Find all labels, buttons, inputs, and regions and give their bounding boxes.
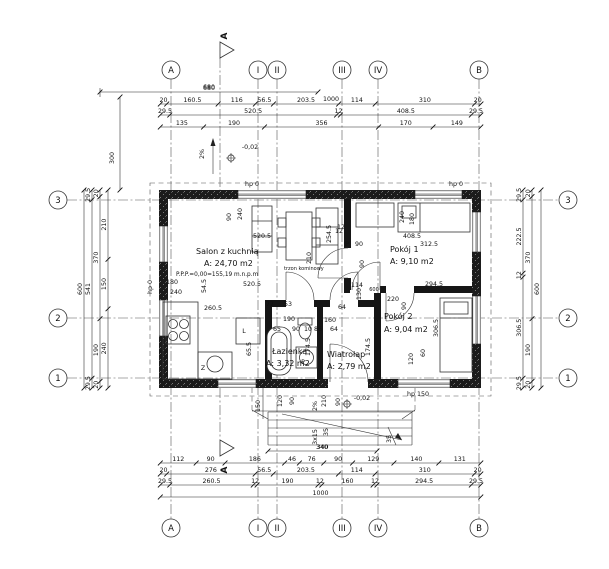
dim-label: 114 bbox=[351, 282, 363, 289]
room-area-wiatrolap: A: 2,79 m2 bbox=[327, 362, 371, 371]
kitchen-counter bbox=[163, 302, 198, 379]
dim-label: P bbox=[345, 241, 349, 248]
dim-label: 131 bbox=[454, 456, 466, 463]
dim-label: 408.5 bbox=[403, 233, 421, 240]
dim-label: 408.5 bbox=[397, 108, 415, 115]
dim-label: 1000 bbox=[323, 96, 339, 103]
dim-label: 541 bbox=[85, 283, 92, 295]
axis-label: B bbox=[476, 66, 482, 76]
dim-label: 160 bbox=[341, 478, 353, 485]
dim-label: 90 bbox=[335, 398, 342, 406]
window bbox=[398, 379, 450, 388]
dim-label: 170 bbox=[400, 120, 412, 127]
dim-label: 186 bbox=[249, 456, 261, 463]
axis-label: B bbox=[476, 524, 482, 534]
dim-label: 56.5 bbox=[257, 467, 271, 474]
section-marker-icon bbox=[220, 42, 234, 58]
axis-label: A bbox=[168, 524, 174, 534]
room-name-pokoj2: Pokój 2 bbox=[384, 311, 413, 321]
dim-label: 120 bbox=[277, 395, 284, 407]
dim-label: 12 bbox=[335, 228, 343, 235]
dim-label: 130 bbox=[356, 288, 363, 300]
dim-label: 135 bbox=[176, 120, 188, 127]
room-area-pokoj2: A: 9,04 m2 bbox=[384, 325, 428, 334]
room-area-salon: A: 24,70 m2 bbox=[204, 259, 253, 268]
axis-label: 1 bbox=[565, 374, 570, 384]
axis-label: III bbox=[338, 66, 346, 76]
dim-label: 20 bbox=[474, 467, 482, 474]
dim-label: 20 bbox=[525, 189, 532, 197]
room-name-lazienka: Łazienka bbox=[271, 347, 307, 356]
dim-label: 160 bbox=[324, 317, 336, 324]
axis-label: A bbox=[168, 66, 174, 76]
dim-label: 276 bbox=[205, 467, 217, 474]
dim-label: L bbox=[242, 328, 246, 335]
dim-label: 1000 bbox=[313, 490, 329, 497]
dim-label: 306.5 bbox=[433, 319, 440, 337]
axis-bubbles: AIIIIIIIVBAIIIIIIIVB321321 bbox=[49, 61, 577, 537]
window bbox=[472, 212, 481, 252]
dim-label: 120 bbox=[408, 353, 415, 365]
dim-label: hp 0 bbox=[245, 181, 259, 188]
dim-label: 140 bbox=[410, 456, 422, 463]
axis-label: II bbox=[274, 524, 279, 534]
dim-label: 190 bbox=[93, 344, 100, 356]
section-label-bottom: A bbox=[220, 466, 230, 473]
dim-label: 310 bbox=[419, 97, 431, 104]
dim-label: 54.5 bbox=[201, 279, 208, 293]
dim-label: 600 bbox=[369, 287, 379, 293]
dim-label: 190 bbox=[525, 344, 532, 356]
axis-label: 2 bbox=[565, 314, 570, 324]
dim-label: 190 bbox=[282, 478, 294, 485]
dim-label: 29.5 bbox=[469, 478, 483, 485]
dim-label: 240 bbox=[399, 211, 406, 223]
dim-label: 2% bbox=[199, 149, 206, 159]
dim-label: 64 bbox=[338, 304, 346, 311]
dim-label: 174.5 bbox=[365, 338, 372, 356]
dim-label: 180 bbox=[409, 213, 416, 225]
dim-label: 76 bbox=[308, 456, 316, 463]
dim-label: 20 bbox=[159, 97, 167, 104]
floor-level-note: P.P.P.=0,00=155,19 m.n.p.m bbox=[176, 272, 259, 278]
dim-label: 77 bbox=[266, 301, 274, 308]
dim-label: 294.5 bbox=[415, 478, 433, 485]
dim-label: 3x15 bbox=[312, 429, 319, 445]
dim-label: 64 bbox=[330, 326, 338, 333]
dim-label: 90 bbox=[334, 456, 342, 463]
dim-label: 254.5 bbox=[326, 225, 333, 243]
dim-label: 29.5 bbox=[158, 108, 172, 115]
dim-label: 29.5 bbox=[158, 478, 172, 485]
dim-label: 20 bbox=[159, 467, 167, 474]
dim-label: 310 bbox=[419, 467, 431, 474]
dim-label: 90 bbox=[401, 302, 408, 310]
dim-label: 10 bbox=[304, 326, 312, 333]
dim-label: 240 bbox=[170, 289, 182, 296]
dim-label: 114 bbox=[351, 467, 363, 474]
dim-label: 260.5 bbox=[202, 478, 220, 485]
axis-label: IV bbox=[374, 66, 383, 76]
dim-label: trzon kominowy bbox=[284, 266, 324, 272]
dim-label: 190 bbox=[283, 316, 295, 323]
dim-label: 90 bbox=[207, 456, 215, 463]
dim-label: 20 bbox=[93, 189, 100, 197]
dim-label: 29.5 bbox=[469, 108, 483, 115]
dim-label: 29.5 bbox=[85, 376, 92, 390]
room-name-salon: Salon z kuchnią bbox=[196, 247, 259, 256]
dim-label: 680 bbox=[203, 84, 215, 91]
dim-label: 190 bbox=[228, 120, 240, 127]
window bbox=[415, 190, 462, 199]
window bbox=[159, 300, 168, 336]
dim-label: 370 bbox=[93, 252, 100, 264]
dim-label: 90 bbox=[289, 397, 296, 405]
cabinet bbox=[252, 206, 272, 252]
dim-label: 180 bbox=[166, 279, 178, 286]
dim-label: 35 bbox=[323, 428, 330, 436]
section-marker-icon bbox=[220, 440, 234, 456]
floor-plan-canvas: A A 68020160.511656.5203.51143102029.552… bbox=[0, 0, 609, 569]
axis-label: 1 bbox=[55, 374, 60, 384]
dim-label: 20 bbox=[93, 381, 100, 389]
dim-label: 129 bbox=[367, 456, 379, 463]
kitchen-sink bbox=[207, 356, 223, 372]
dim-label: 29.5 bbox=[516, 376, 523, 390]
dim-label: 312.5 bbox=[420, 241, 438, 248]
window bbox=[472, 296, 481, 344]
axis-label: 2 bbox=[55, 314, 60, 324]
dim-label: hp 150 bbox=[407, 391, 429, 398]
dim-label: 222.5 bbox=[516, 227, 523, 245]
window bbox=[238, 190, 306, 199]
dim-label: 240 bbox=[237, 208, 244, 220]
dim-label: 29.5 bbox=[516, 188, 523, 202]
dim-label: 46 bbox=[288, 456, 296, 463]
dim-label: 240 bbox=[101, 342, 108, 354]
dim-label: Z bbox=[201, 365, 206, 372]
dim-label: 90 bbox=[292, 326, 300, 333]
dim-label: 86 bbox=[314, 326, 322, 333]
dim-label: 150 bbox=[255, 400, 262, 412]
bed-2 bbox=[440, 298, 472, 372]
room-name-pokoj1: Pokój 1 bbox=[390, 244, 419, 254]
dim-label: 260.5 bbox=[204, 305, 222, 312]
dim-label: 600 bbox=[534, 283, 541, 295]
dim-label: 340 bbox=[316, 444, 328, 451]
window bbox=[218, 379, 256, 388]
axis-label: 3 bbox=[55, 196, 60, 206]
dim-label: 210 bbox=[306, 252, 313, 264]
dim-label: 65 bbox=[273, 326, 281, 333]
dim-label: 90 bbox=[226, 213, 233, 221]
dim-label: 294.5 bbox=[425, 281, 443, 288]
window bbox=[159, 226, 168, 262]
dim-label: 356 bbox=[315, 120, 327, 127]
dim-label: 203.5 bbox=[297, 467, 315, 474]
axis-label: II bbox=[274, 66, 279, 76]
dim-label: 35 bbox=[386, 435, 393, 443]
dim-label: 56.5 bbox=[257, 97, 271, 104]
dim-label: 114 bbox=[351, 97, 363, 104]
dim-label: 29.5 bbox=[85, 188, 92, 202]
dim-label: 149 bbox=[451, 120, 463, 127]
floor-plan-svg: A A 68020160.511656.5203.51143102029.552… bbox=[0, 0, 609, 569]
dim-label: 210 bbox=[321, 395, 328, 407]
dim-label: 520.5 bbox=[253, 233, 271, 240]
dim-label: 2% bbox=[312, 401, 319, 411]
axis-label: I bbox=[257, 66, 260, 76]
dim-label: 300 bbox=[109, 152, 116, 164]
dim-label: -0,02 bbox=[242, 144, 258, 151]
axis-label: I bbox=[257, 524, 260, 534]
dim-label: 116 bbox=[231, 97, 243, 104]
axis-label: 3 bbox=[565, 196, 570, 206]
dim-label: 210 bbox=[101, 219, 108, 231]
axis-label: IV bbox=[374, 524, 383, 534]
dim-label: 53 bbox=[284, 301, 292, 308]
dim-label: hp 0 bbox=[449, 181, 463, 188]
dim-label: 150 bbox=[101, 278, 108, 290]
dim-label: 20 bbox=[525, 381, 532, 389]
dim-label: 65.5 bbox=[246, 342, 253, 356]
room-area-pokoj1: A: 9,10 m2 bbox=[390, 257, 434, 266]
dim-label: 90 bbox=[359, 260, 366, 268]
room-name-wiatrolap: Wiatrołap bbox=[327, 350, 365, 359]
dim-label: 90 bbox=[355, 241, 363, 248]
dim-label: 60 bbox=[420, 349, 427, 357]
pillow-2 bbox=[444, 302, 468, 314]
dim-label: -0,02 bbox=[354, 395, 370, 402]
wardrobe bbox=[356, 203, 394, 227]
dim-label: 520.5 bbox=[243, 281, 261, 288]
dim-label: 306.5 bbox=[516, 319, 523, 337]
dim-label: 20 bbox=[474, 97, 482, 104]
fridge bbox=[236, 318, 260, 344]
dim-label: 203.5 bbox=[297, 97, 315, 104]
dim-label: 600 bbox=[77, 283, 84, 295]
dim-label: 220 bbox=[387, 296, 399, 303]
dim-label: 112 bbox=[172, 456, 184, 463]
dim-label: 160.5 bbox=[183, 97, 201, 104]
dim-label: P bbox=[301, 359, 305, 366]
section-label-top: A bbox=[220, 32, 230, 39]
dim-label: 520.5 bbox=[244, 108, 262, 115]
dim-label: hp 0 bbox=[147, 280, 154, 294]
axis-grid bbox=[67, 79, 559, 519]
axis-label: III bbox=[338, 524, 346, 534]
dim-label: 370 bbox=[525, 252, 532, 264]
